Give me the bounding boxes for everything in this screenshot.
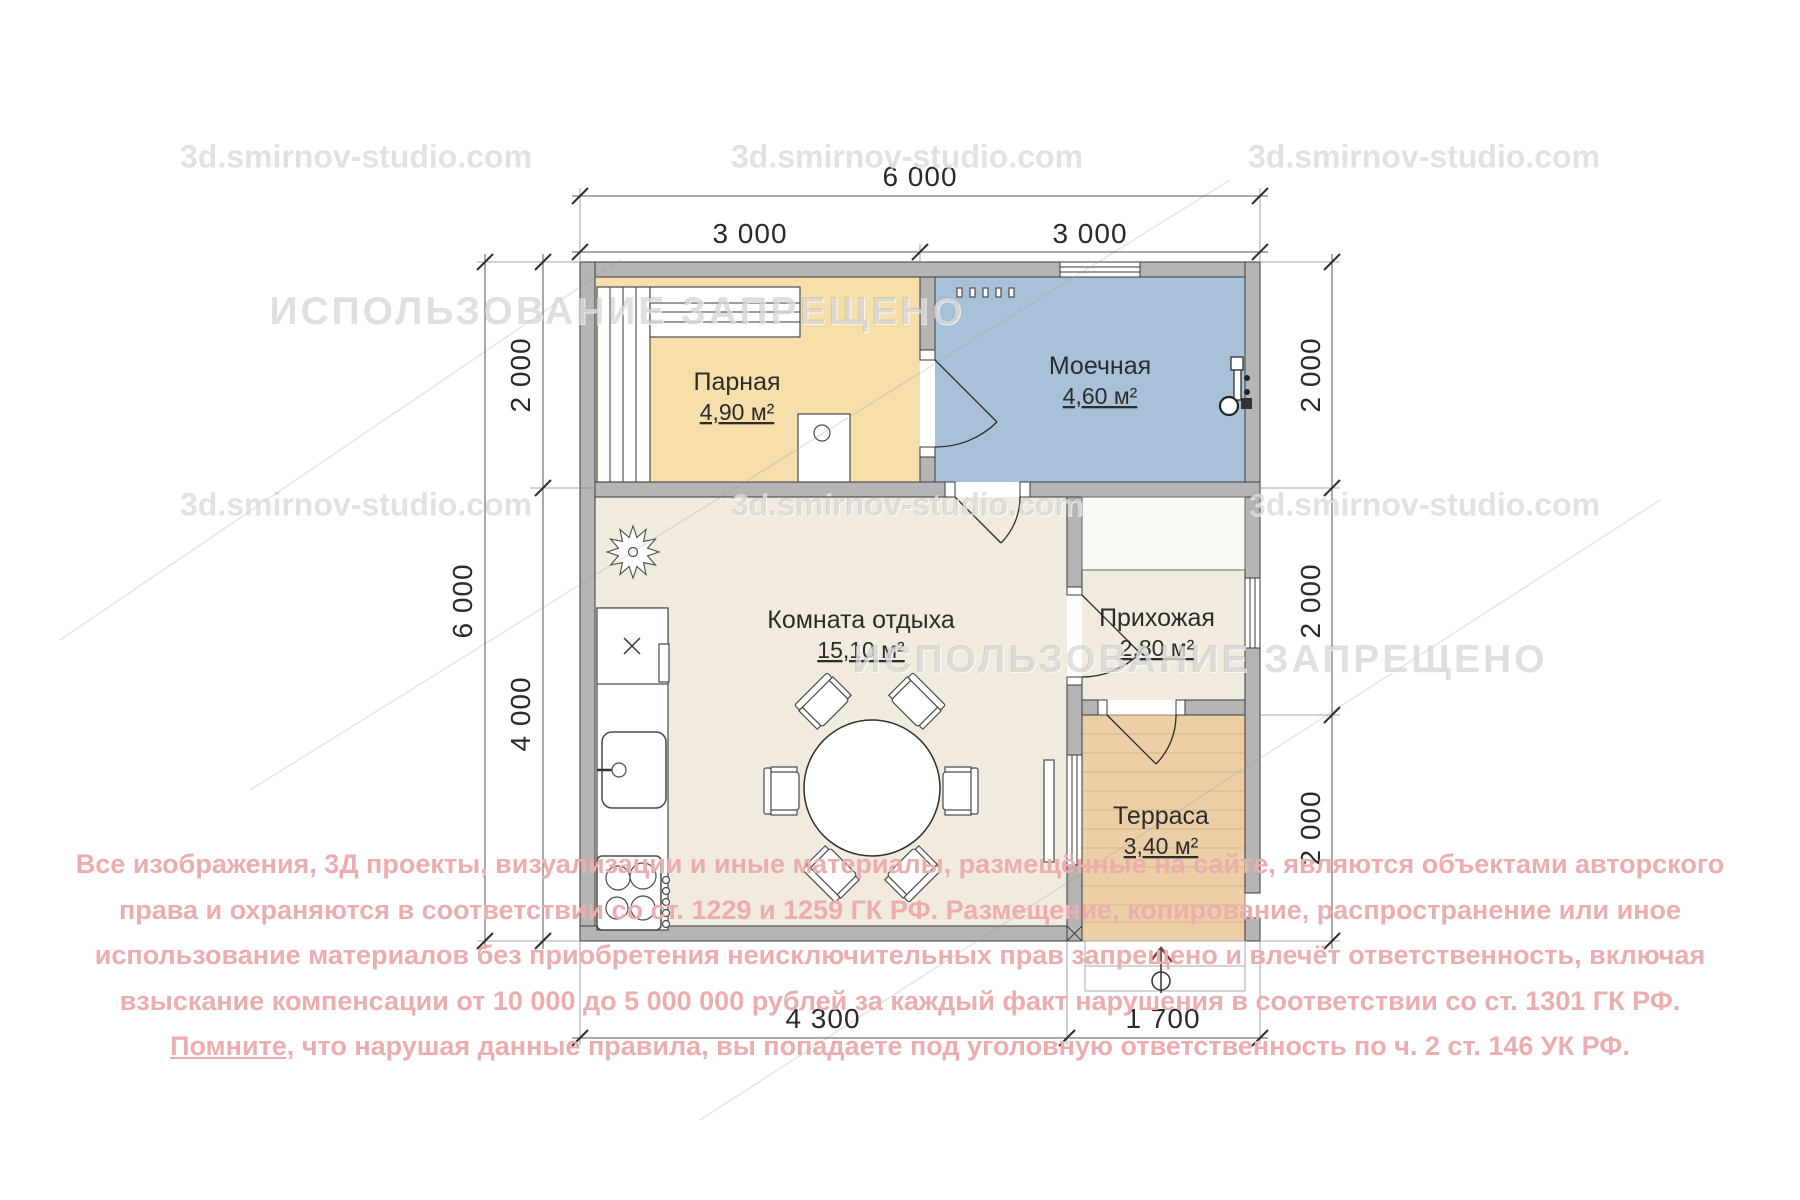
dining-table-icon [804, 720, 940, 856]
copyright-line: Помните, что нарушая данные правила, вы … [30, 1024, 1770, 1070]
dim-top-right: 3 000 [1052, 218, 1127, 249]
dim-left-total: 6 000 [447, 563, 478, 638]
copyright-line: взыскание компенсации от 10 000 до 5 000… [30, 979, 1770, 1025]
kitchen-sink-icon [597, 732, 666, 808]
watermark-site: 3d.smirnov-studio.com [180, 487, 532, 524]
dim-top-left: 3 000 [712, 218, 787, 249]
floor-plan-page: Парная 4,90 м² Моечная 4,60 м² Комната о… [0, 0, 1800, 1200]
hallway-closet-icon [1082, 497, 1245, 570]
label-moechnaya: Моечная [1049, 352, 1151, 380]
wall-top-left [580, 262, 1060, 277]
wall-hallway-terrace-b [1185, 700, 1245, 715]
label-moechnaya-area: 4,60 м² [1063, 383, 1138, 409]
copyright-line: использование материалов без приобретени… [30, 933, 1770, 979]
label-parnaya: Парная [693, 368, 780, 396]
wall-lounge-terrace-a [1067, 685, 1082, 755]
dim-left-top: 2 000 [505, 337, 536, 412]
watermark-forbidden: ИСПОЛЬЗОВАНИЕ ЗАПРЕЩЕНО [852, 638, 1547, 682]
wall-left [580, 262, 595, 941]
kitchen-cabinet-icon [597, 608, 669, 684]
copyright-line: права и охраняются в соответствии со ст.… [30, 888, 1770, 934]
wall-right-upper [1245, 262, 1260, 578]
dim-right-top: 2 000 [1295, 337, 1326, 412]
wall-hallway-terrace-a [1082, 700, 1098, 715]
sauna-heater-icon [798, 414, 850, 482]
watermark-forbidden: ИСПОЛЬЗОВАНИЕ ЗАПРЕЩЕНО [269, 290, 964, 334]
wall-parnaya-moechnaya-b [920, 457, 935, 482]
copyright-remember: Помните, [170, 1031, 294, 1061]
dim-right-middle: 2 000 [1295, 563, 1326, 638]
label-lounge: Комната отдыха [767, 606, 955, 634]
label-hallway: Прихожая [1099, 604, 1215, 632]
label-parnaya-area: 4,90 м² [700, 399, 775, 425]
dim-left-bottom: 4 000 [505, 676, 536, 751]
watermark-site: 3d.smirnov-studio.com [731, 139, 1083, 176]
copyright-notice: Все изображения, 3Д проекты, визуализаци… [30, 842, 1770, 1070]
wall-top-right [1140, 262, 1260, 277]
window-top-moechnaya-icon [1060, 262, 1140, 277]
watermark-site: 3d.smirnov-studio.com [1248, 139, 1600, 176]
watermark-site: 3d.smirnov-studio.com [1248, 487, 1600, 524]
watermark-site: 3d.smirnov-studio.com [731, 487, 1083, 524]
label-terrace: Терраса [1113, 802, 1209, 830]
watermark-site: 3d.smirnov-studio.com [180, 139, 532, 176]
copyright-line: Все изображения, 3Д проекты, визуализаци… [30, 842, 1770, 888]
copyright-line5-rest: что нарушая данные правила, вы попадаете… [294, 1031, 1630, 1061]
